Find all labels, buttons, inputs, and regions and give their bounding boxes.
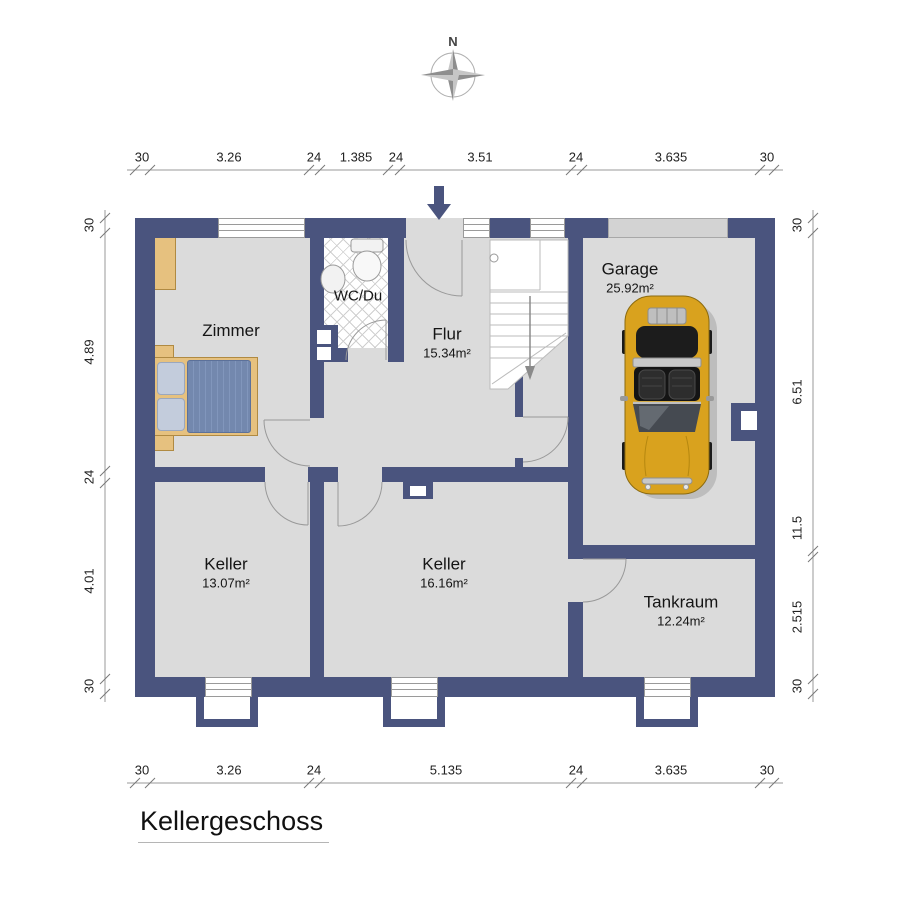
plan-title: Kellergeschoss: [138, 806, 329, 843]
wall-top-b: [305, 218, 406, 238]
dim-left-1: 4.89: [82, 339, 97, 364]
wall-wc-right: [388, 238, 404, 362]
wall-h2-left: [135, 467, 265, 482]
floorplan-canvas: N Zimmer WC/: [0, 0, 900, 900]
wall-outer-right: [755, 218, 775, 697]
wall-h2-stub: [308, 467, 338, 482]
bed: [152, 357, 258, 436]
room-label-flur: Flur 15.34m²: [423, 324, 471, 363]
chimney-flue: [410, 486, 426, 496]
dim-bottom-0: 30: [135, 763, 149, 778]
room-label-garage: Garage 25.92m²: [602, 259, 659, 298]
room-label-zimmer: Zimmer: [202, 320, 260, 342]
room-name: WC/Du: [334, 286, 382, 306]
wall-top-d: [565, 218, 608, 238]
room-name: Keller: [420, 554, 468, 576]
room-area: 13.07m²: [202, 576, 250, 593]
wall-garage-left-upper: [568, 238, 583, 559]
dim-top-5: 3.51: [467, 150, 492, 165]
entrance-arrow-icon: [427, 186, 451, 220]
window-bottom-keller2: [391, 677, 438, 697]
room-label-tankraum: Tankraum 12.24m²: [644, 592, 719, 631]
dim-bottom-2: 24: [307, 763, 321, 778]
room-area: 12.24m²: [644, 614, 719, 631]
compass-icon: N: [421, 34, 485, 101]
light-well-1: [196, 697, 258, 727]
room-name: Flur: [423, 324, 471, 346]
dim-bottom-3: 5.135: [430, 763, 463, 778]
wc-shaft-niche-2: [317, 347, 331, 360]
room-label-wc: WC/Du: [334, 286, 382, 306]
dim-top-0: 30: [135, 150, 149, 165]
room-name: Tankraum: [644, 592, 719, 614]
dim-top-1: 3.26: [216, 150, 241, 165]
dim-right-4: 30: [790, 679, 805, 693]
bed-duvet: [187, 360, 251, 433]
dim-bottom-5: 3.635: [655, 763, 688, 778]
room-name: Zimmer: [202, 320, 260, 342]
dim-left-4: 30: [82, 679, 97, 693]
dim-top-2: 24: [307, 150, 321, 165]
dim-top-6: 24: [569, 150, 583, 165]
wall-top-a: [135, 218, 218, 238]
window-bottom-keller1: [205, 677, 252, 697]
room-label-keller2: Keller 16.16m²: [420, 554, 468, 593]
wc-shaft-niche-1: [317, 330, 331, 344]
window-top-flur: [463, 218, 490, 238]
compass-north-label: N: [448, 34, 457, 49]
wall-bottom-d: [691, 677, 775, 697]
dim-left-3: 4.01: [82, 568, 97, 593]
wall-bottom-c: [438, 677, 644, 697]
bed-pillow-1: [157, 362, 185, 395]
dim-top-8: 30: [760, 150, 774, 165]
wardrobe: [152, 233, 176, 290]
wall-bottom-b: [252, 677, 391, 697]
window-top-stair: [530, 218, 565, 238]
dim-bottom-6: 30: [760, 763, 774, 778]
dim-left-2: 24: [82, 470, 97, 484]
room-label-keller1: Keller 13.07m²: [202, 554, 250, 593]
room-name: Keller: [202, 554, 250, 576]
wall-keller-divider: [310, 467, 324, 677]
room-area: 16.16m²: [420, 576, 468, 593]
dim-left-0: 30: [82, 218, 97, 232]
dim-right-3: 2.515: [790, 601, 805, 634]
wall-h2-right: [382, 467, 570, 482]
window-top-zimmer: [218, 218, 305, 238]
window-bottom-tankraum: [644, 677, 691, 697]
garage-door: [608, 218, 728, 238]
nightstand-bottom: [152, 435, 174, 451]
room-name: Garage: [602, 259, 659, 281]
room-area: 25.92m²: [602, 281, 659, 298]
dim-top-4: 24: [389, 150, 403, 165]
wall-top-e: [728, 218, 775, 238]
dim-right-1: 6.51: [790, 379, 805, 404]
wall-bottom-a: [135, 677, 205, 697]
wall-garage-left-lower: [568, 602, 583, 677]
wall-top-c: [490, 218, 530, 238]
wall-outer-left: [135, 218, 155, 697]
dim-right-2: 11.5: [790, 516, 805, 540]
wall-stair-nook-a: [515, 362, 523, 417]
dim-bottom-4: 24: [569, 763, 583, 778]
light-well-3: [636, 697, 698, 727]
dim-top-3: 1.385: [340, 150, 373, 165]
garage-pillar-niche: [741, 411, 757, 430]
entry-opening: [406, 218, 463, 238]
light-well-2: [383, 697, 445, 727]
dim-bottom-1: 3.26: [216, 763, 241, 778]
bed-pillow-2: [157, 398, 185, 431]
dim-right-0: 30: [790, 218, 805, 232]
wall-tankraum-top: [583, 545, 755, 559]
dim-top-7: 3.635: [655, 150, 688, 165]
room-area: 15.34m²: [423, 346, 471, 363]
